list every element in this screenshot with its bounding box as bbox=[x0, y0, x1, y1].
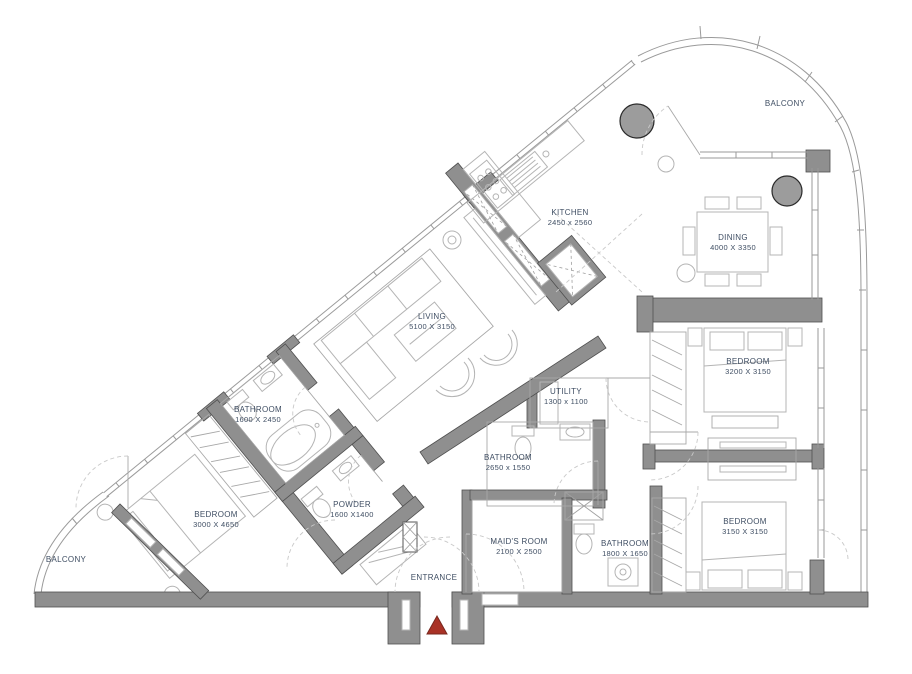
balcony-rail-bottom-left bbox=[34, 492, 109, 594]
side-table bbox=[443, 231, 461, 249]
label-bedroom-top-right-dims: 3200 X 3150 bbox=[725, 367, 771, 376]
duct-shaft bbox=[403, 522, 417, 552]
label-kitchen-dims: 2450 x 2560 bbox=[548, 218, 593, 227]
label-bathroom-right: BATHROOM bbox=[601, 539, 649, 548]
label-bathroom-left-dims: 1600 X 2450 bbox=[235, 415, 281, 424]
bedroom-top-right-furniture bbox=[650, 328, 802, 444]
dining-table bbox=[697, 212, 768, 272]
label-bedroom-bottom-right: BEDROOM bbox=[723, 517, 766, 526]
entrance-marker bbox=[427, 616, 447, 634]
label-utility-dims: 1300 x 1100 bbox=[544, 397, 588, 406]
entrance-door-leaf bbox=[402, 600, 410, 630]
wall-bath-west bbox=[206, 400, 352, 574]
label-living-dims: 5100 X 3150 bbox=[409, 322, 455, 331]
column bbox=[620, 104, 654, 138]
label-powder-dims: 1600 X1400 bbox=[330, 510, 373, 519]
label-entrance: ENTRANCE bbox=[411, 573, 457, 582]
sink bbox=[253, 364, 282, 391]
label-balcony-bottom: BALCONY bbox=[46, 555, 87, 564]
stool bbox=[677, 264, 695, 282]
label-bedroom-bottom-right-dims: 3150 X 3150 bbox=[722, 527, 768, 536]
label-balcony-top: BALCONY bbox=[765, 99, 806, 108]
bed bbox=[702, 502, 786, 590]
label-bedroom-top-right: BEDROOM bbox=[726, 357, 769, 366]
label-bedroom-left-dims: 3000 X 4650 bbox=[193, 520, 239, 529]
label-bathroom-middle-dims: 2650 x 1550 bbox=[486, 463, 531, 472]
bedroom-bottom-right-furniture bbox=[652, 498, 802, 592]
kitchen-wall-group bbox=[435, 136, 606, 322]
kitchen-sink bbox=[500, 151, 547, 195]
label-powder: POWDER bbox=[333, 500, 371, 509]
label-living: LIVING bbox=[418, 312, 446, 321]
label-dining-dims: 4000 X 3350 bbox=[710, 243, 756, 252]
label-bathroom-right-dims: 1800 X 1650 bbox=[602, 549, 648, 558]
label-maids-room: MAID'S ROOM bbox=[490, 537, 547, 546]
entrance-door-leaf bbox=[460, 600, 468, 630]
label-bedroom-left: BEDROOM bbox=[194, 510, 237, 519]
label-utility: UTILITY bbox=[550, 387, 582, 396]
wall-bedroom-divider bbox=[648, 450, 818, 462]
column bbox=[772, 176, 802, 206]
label-dining: DINING bbox=[718, 233, 748, 242]
label-bathroom-left: BATHROOM bbox=[234, 405, 282, 414]
powder-sink bbox=[332, 456, 359, 481]
label-kitchen: KITCHEN bbox=[551, 208, 588, 217]
stool bbox=[658, 156, 674, 172]
wall-bedroom-top bbox=[645, 298, 822, 322]
sink bbox=[608, 558, 638, 586]
floor-plan: BALCONY KITCHEN 2450 x 2560 DINING 4000 … bbox=[0, 0, 912, 674]
powder-toilet bbox=[301, 486, 323, 506]
label-bathroom-middle: BATHROOM bbox=[484, 453, 532, 462]
label-maids-room-dims: 2100 X 2500 bbox=[496, 547, 542, 556]
